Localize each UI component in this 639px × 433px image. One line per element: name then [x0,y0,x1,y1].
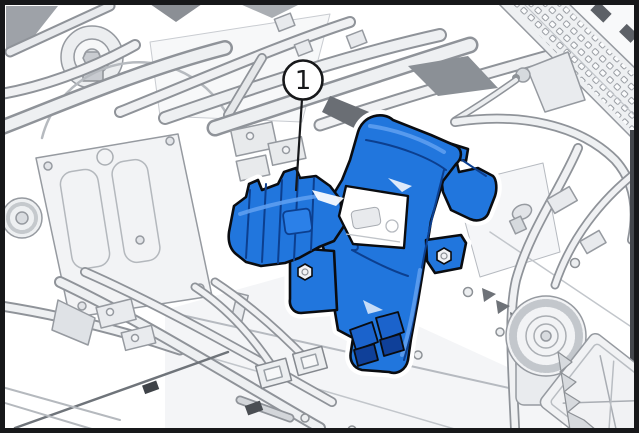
callout-marker: 1 [284,61,323,100]
component-window [339,186,408,248]
connector-detail [283,208,313,235]
oil-cap [2,198,42,238]
engine-illustration: 1 [0,0,639,433]
illustration-frame: 1 [0,0,639,433]
callout-label: 1 [295,66,312,96]
